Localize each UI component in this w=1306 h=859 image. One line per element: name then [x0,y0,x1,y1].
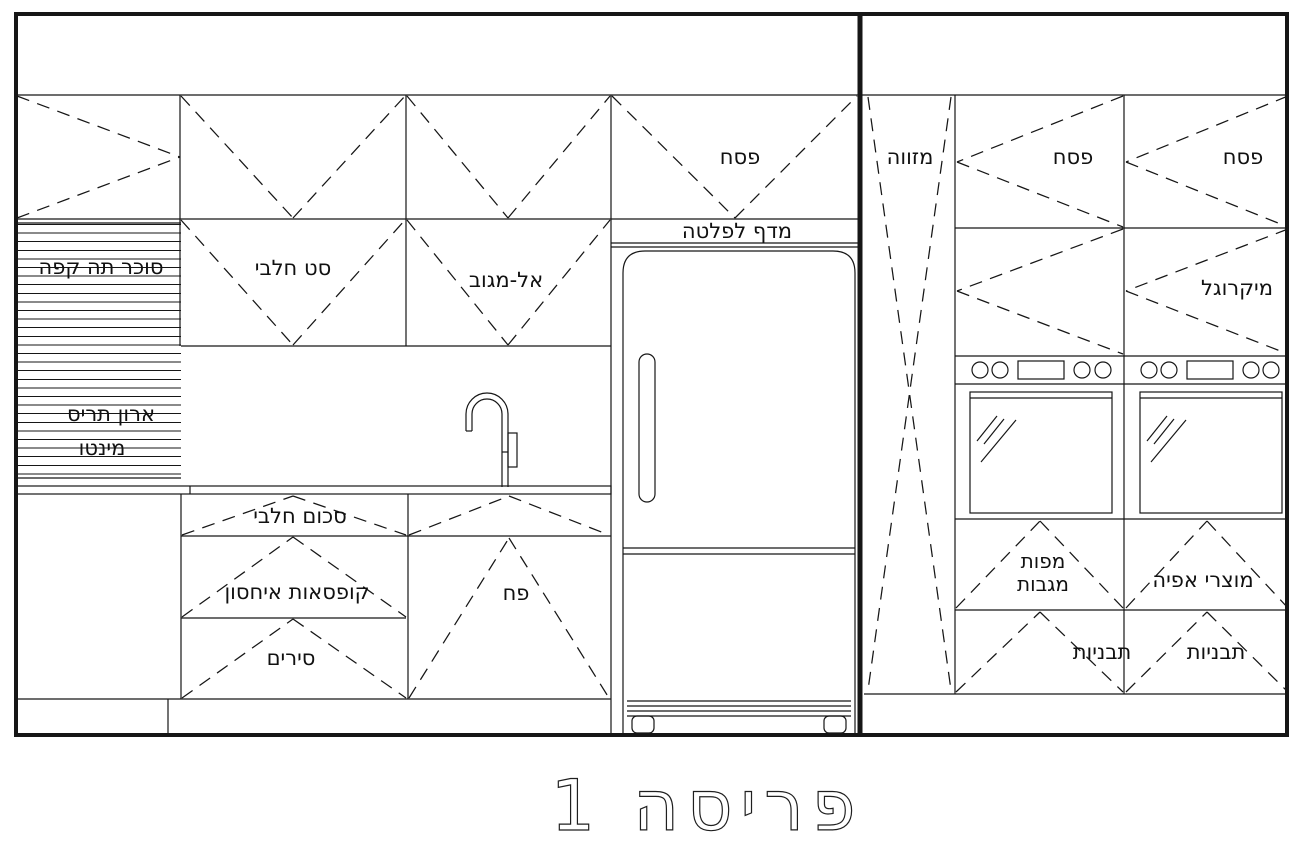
label-towels-line1: מפות [1021,549,1066,573]
faucet [466,393,517,487]
label-shutter-cabinet-2: מינטו [79,436,126,460]
label-sugar-tea-coffee: סוכר תה קפה [39,255,164,279]
door-swing-upper-left [17,96,180,218]
label-towels-line2: מגבות [1017,572,1069,596]
label-towels: מפות מגבות [1017,550,1069,596]
faucet-handle [508,433,517,467]
label-trays-right: תבניות [1187,640,1246,664]
label-storage-boxes: קופסאות איחסון [224,580,369,604]
label-dairy-cutlery: סכום חלבי [253,504,347,528]
label-pantry: מזווה [887,145,934,169]
drawing-linework [0,0,1306,859]
label-pesach-right-1: פסח [1053,145,1093,169]
door-swing-right-uppers [957,96,1288,354]
oven-knob [1074,362,1090,378]
oven-display [1187,361,1233,379]
fridge-handle [639,354,655,502]
door-swing-mid-row [181,220,610,345]
fridge-foot-right [824,716,846,733]
sheet-title: פריסה 1 [551,765,864,847]
fridge-foot-left [632,716,654,733]
oven-knob [972,362,988,378]
oven-door [970,392,1112,513]
elevation-drawing: סוכר תה קפה ארון תריס מינטו סט חלבי אל-מ… [0,0,1306,859]
door-swing-pantry [868,97,951,690]
label-trash-bin: פח [503,581,530,605]
door-swing-top-mid [181,96,610,218]
oven-knob [1095,362,1111,378]
label-pots: סירים [267,646,316,670]
label-baking-products: מוצרי אפיה [1152,568,1253,592]
oven-display [1018,361,1064,379]
right-wall-carcass [864,95,1287,694]
refrigerator [623,251,855,734]
oven-knob [992,362,1008,378]
label-hotplate-shelf: מדף לפלטה [682,219,792,243]
oven-knob [1161,362,1177,378]
drawer-marks-right-base [956,521,1288,692]
door-swing-marks [17,96,1288,698]
oven-door [1140,392,1282,513]
oven-knob [1141,362,1157,378]
label-pesach-right-2: פסח [1223,145,1263,169]
label-almagov: אל-מגוב [469,268,543,292]
oven-knob [1263,362,1279,378]
label-shutter-cabinet: ארון תריס [67,402,155,426]
label-dairy-set: סט חלבי [255,256,331,280]
countertop [16,486,611,494]
label-microwave: מיקרוגל [1201,276,1273,300]
label-pesach-fridge: פסח [720,145,760,169]
label-trays-left: תבניות [1073,640,1132,664]
oven-knob [1243,362,1259,378]
